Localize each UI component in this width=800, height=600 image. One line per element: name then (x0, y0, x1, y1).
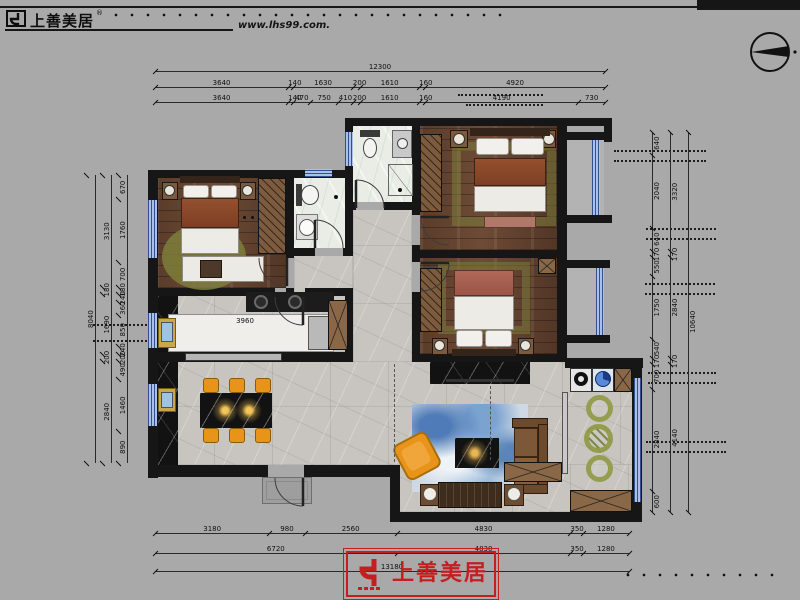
dining-chair-3 (255, 378, 271, 393)
dining-chair-5 (229, 428, 245, 443)
dim-top-row3: 364014047075041020016101604190730 (155, 93, 605, 103)
dining-table (200, 393, 272, 428)
utility-sliding-door (562, 392, 568, 474)
bath1-toilet-bowl-icon (301, 185, 319, 205)
header-top-rule (0, 6, 800, 8)
dimension-line (155, 87, 605, 88)
dimension-label: 4190 (425, 94, 578, 102)
bedroom3-pillow-right (485, 330, 512, 347)
master-lamp-left-icon (453, 133, 465, 145)
bath1-sink-basin-icon (299, 219, 315, 236)
dots-decoration-header (108, 12, 512, 18)
bath1-floor-drain-icon (334, 195, 338, 199)
dimension-label: 1280 (583, 525, 629, 533)
bedroom3-window (596, 268, 604, 335)
wall-hall-east-a (412, 118, 420, 215)
wall-living-south (390, 512, 642, 522)
bedroom3-cabinet (538, 258, 556, 274)
dim-top-row2: 3640140163020016101604920 (155, 78, 605, 88)
tv-icon (446, 379, 514, 382)
utility-rack-icon (584, 424, 613, 453)
master-pillow-right (511, 138, 544, 155)
dimension-label: 1690 (102, 294, 112, 355)
north-indicator-icon (748, 29, 798, 77)
bedroom2-foot-bench (182, 256, 264, 282)
bedroom2-bench-tray (200, 260, 222, 278)
master-pillow-left (476, 138, 509, 155)
bedroom3-door (420, 262, 450, 292)
blueprint-canvas: 上善美居 ® www.lhs99.com. (0, 0, 800, 600)
wall-bay-stub-4 (567, 335, 610, 343)
ceiling-spot-dot-2 (251, 216, 254, 219)
bedroom2-window (148, 200, 157, 258)
dimension-label: 4830 (397, 525, 571, 533)
bath2-toilet-tank (360, 130, 380, 137)
dimension-label: 2840 (670, 257, 680, 358)
dining-chair-4 (203, 428, 219, 443)
dimension-label: 3130 (102, 175, 112, 287)
footer-logo-mark (354, 556, 386, 592)
master-bay-window (592, 140, 600, 215)
washing-machine-drum-icon (595, 371, 611, 387)
dim-right-mid: 332017028401704140 (670, 132, 680, 512)
wall-east-bedrooms (557, 118, 567, 362)
bedroom2-door (258, 257, 288, 287)
wall-dining-south-a (148, 465, 268, 477)
bathroom1-door (314, 219, 344, 249)
header-underline (5, 29, 233, 31)
utility-sink-icon (574, 372, 588, 386)
dimension-line (155, 533, 629, 534)
wall-bay-stub-3 (567, 260, 610, 268)
master-bed-blanket (474, 158, 546, 186)
dim-left-mid: 313018016902002840 (102, 175, 112, 463)
dimension-label: 750 (310, 94, 337, 102)
bedroom2-pillow-left (183, 185, 209, 198)
dining-chair-2 (229, 378, 245, 393)
dining-cabinet-sink-icon (161, 392, 173, 408)
master-foot-bench (484, 216, 536, 228)
bathroom1-window (305, 169, 332, 177)
dimension-label: 730 (578, 94, 605, 102)
dimension-label: 2040 (652, 155, 662, 228)
bedroom2-bed-sheet (181, 228, 239, 254)
kitchen-window (148, 313, 157, 348)
bath2-sink-icon (397, 138, 408, 149)
wall-hall-east-c (412, 292, 420, 354)
wall-master-bed3-divider (412, 250, 567, 258)
bedroom3-lamp-right-icon (520, 340, 531, 351)
dimension-label: 1460 (118, 379, 128, 431)
kitchen-pass-through-counter (185, 353, 282, 361)
dimension-label: 2840 (652, 389, 662, 490)
hall-cabinet (328, 300, 348, 350)
dimension-line (155, 71, 605, 72)
sofa-cushion-1 (514, 428, 538, 457)
ceiling-spot-dot-1 (243, 216, 246, 219)
tv-console (438, 482, 502, 508)
dimension-label: 3320 (670, 132, 680, 251)
wall-bay-stub-2 (567, 215, 612, 223)
side-table-right-top-icon (507, 487, 521, 501)
bedroom2-lamp-left-icon (164, 185, 175, 196)
hallway-floor (353, 210, 412, 362)
bath2-toilet-bowl-icon (363, 138, 377, 158)
bedroom2-wardrobe (258, 178, 286, 254)
dimension-label: 850 (118, 315, 128, 345)
dim-bottom-row1: 3180980256048303501280 (155, 524, 629, 534)
dimension-label: 8040 (86, 175, 96, 463)
dim-right-inner: 640204064017055017505401707002840600 (652, 132, 662, 512)
dimension-label: 2560 (305, 525, 397, 533)
dimension-label: 700 (652, 364, 662, 389)
wall-top-high (345, 118, 612, 126)
dimension-label: 10640 (688, 132, 698, 512)
master-bedroom-door (420, 216, 450, 246)
leader-top-2 (466, 104, 543, 106)
dimension-label: 2840 (102, 361, 112, 463)
bedroom2-pillow-right (211, 185, 237, 198)
utility-window (634, 378, 641, 502)
bedroom3-bed-sheet (454, 296, 514, 330)
wall-bay-stub-1 (567, 132, 612, 140)
master-bed-sheet (474, 186, 546, 212)
wall-dining-south-b (304, 465, 396, 477)
bedroom2-bed-blanket (181, 198, 239, 228)
dimension-label: 1610 (360, 94, 419, 102)
dining-window (148, 384, 157, 426)
side-table-left-top-icon (423, 487, 437, 501)
header-corner-bar (697, 0, 800, 10)
dining-corridor-dashed-line (394, 364, 395, 462)
dining-chair-6 (255, 428, 271, 443)
dimension-label: 12300 (155, 63, 605, 71)
dimension-label: 640 (652, 132, 662, 155)
dimension-line (155, 102, 605, 103)
website-text: www.lhs99.com. (238, 20, 330, 31)
utility-cabinet-bottom (570, 490, 632, 512)
footer-logo-text: 上善美居 (392, 554, 488, 594)
kitchen-door (274, 296, 304, 326)
bath2-floor-drain-icon (398, 188, 402, 192)
dimension-label: 1630 (293, 79, 353, 87)
dimension-label: 4920 (425, 79, 605, 87)
dining-chair-1 (203, 378, 219, 393)
dim-right-outer: 10640 (688, 132, 698, 512)
coffee-table (455, 438, 499, 468)
dimension-label: 980 (269, 525, 304, 533)
dimension-label: 3640 (155, 79, 288, 87)
bedroom3-pillow-left (456, 330, 483, 347)
dim-top-total: 12300 (155, 62, 605, 72)
bedroom2-bed-headboard (180, 176, 240, 183)
bedroom2-lamp-right-icon (242, 185, 253, 196)
stove-burner-icon-1 (254, 295, 268, 309)
wall-bath1-south-a (286, 248, 315, 256)
dimension-label: 1750 (652, 276, 662, 339)
living-dashed-line (490, 386, 491, 460)
utility-basin-2-icon (586, 455, 613, 482)
bathroom2-door (355, 179, 385, 209)
kitchen-sink-icon (161, 322, 173, 342)
company-logo-mark (6, 10, 26, 30)
master-wardrobe (420, 134, 442, 212)
logo-registered-mark: ® (96, 9, 103, 17)
living-low-cabinet (504, 462, 562, 482)
dimension-label: 4140 (670, 364, 680, 512)
bathroom2-window (345, 132, 353, 166)
dimension-label: 1760 (118, 199, 128, 262)
kitchen-island-width-label: 3960 (220, 317, 270, 325)
utility-cabinet-top (614, 368, 632, 392)
bedroom3-lamp-left-icon (434, 340, 445, 351)
dim-left-outer: 8040 (86, 175, 96, 463)
footer-logo-box: 上善美居 (346, 551, 496, 597)
company-logo-text: 上善美居 (30, 10, 94, 31)
dots-decoration-footer (620, 572, 780, 578)
dimension-label: 890 (118, 431, 128, 463)
wall-bath1-south-b (343, 248, 353, 256)
dimension-label: 1280 (583, 545, 629, 553)
entry-door (274, 477, 304, 507)
dimension-label: 670 (118, 175, 128, 199)
bedroom3-bed-headboard (452, 349, 516, 356)
dim-left-inner: 67017607001802403608502402004901460890 (118, 175, 128, 463)
dimension-label: 3180 (155, 525, 269, 533)
wall-bedroom2-east-a (286, 170, 294, 258)
dimension-label: 1610 (360, 79, 419, 87)
bedroom3-bed-blanket (454, 270, 514, 296)
utility-basin-1-icon (586, 395, 613, 422)
wall-south-step (390, 465, 400, 522)
dimension-label: 3640 (155, 94, 288, 102)
master-bed-headboard (470, 128, 550, 136)
